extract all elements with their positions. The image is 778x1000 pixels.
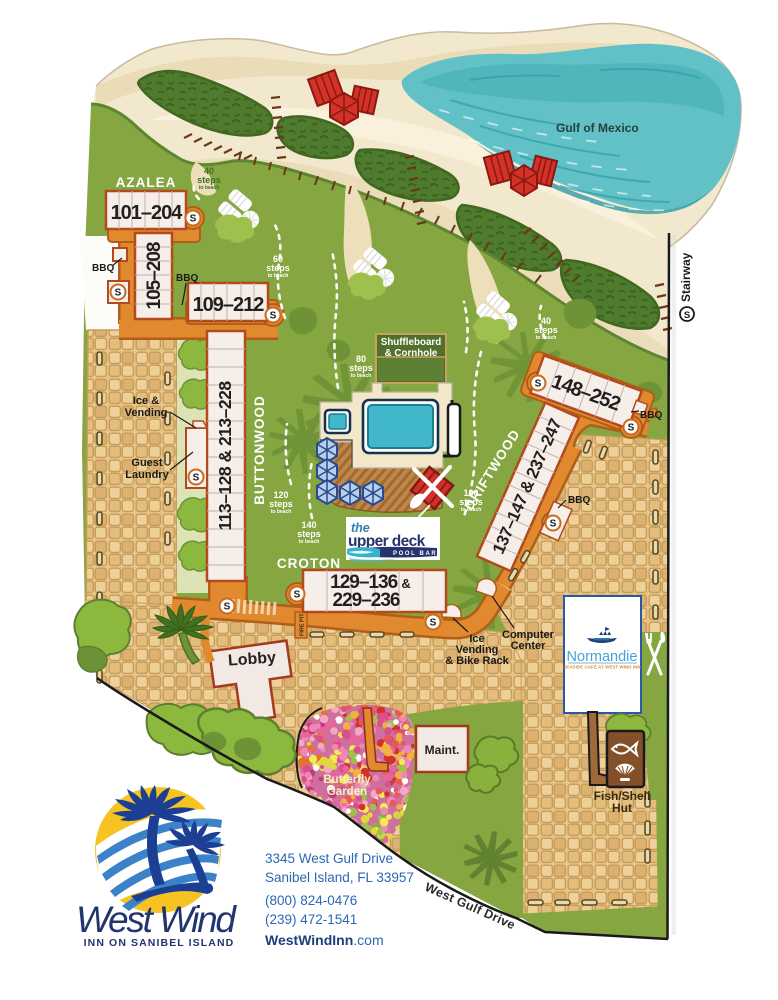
svg-text:steps: steps: [349, 363, 373, 373]
svg-text:to beach: to beach: [351, 373, 372, 379]
svg-text:Laundry: Laundry: [125, 469, 169, 481]
svg-text:229–236: 229–236: [333, 590, 400, 611]
svg-text:West Wind: West Wind: [76, 899, 237, 940]
svg-text:FIRE PIT: FIRE PIT: [300, 613, 306, 636]
svg-text:to beach: to beach: [271, 509, 292, 515]
svg-text:& Cornhole: & Cornhole: [385, 348, 438, 359]
svg-text:to beach: to beach: [536, 335, 557, 341]
svg-text:CROTON: CROTON: [277, 556, 341, 571]
svg-text:101–204: 101–204: [111, 202, 184, 224]
svg-text:Guest: Guest: [131, 457, 163, 469]
svg-text:Sanibel Island, FL 33957: Sanibel Island, FL 33957: [265, 870, 414, 885]
svg-text:BBQ: BBQ: [640, 410, 662, 421]
svg-text:steps: steps: [534, 325, 558, 335]
svg-text:Garden: Garden: [327, 786, 367, 798]
svg-text:Butterfly: Butterfly: [323, 774, 371, 786]
svg-text:Shuffleboard: Shuffleboard: [381, 337, 441, 348]
svg-text:steps: steps: [459, 497, 483, 507]
svg-text:105–208: 105–208: [144, 242, 165, 309]
svg-text:(800) 824-0476: (800) 824-0476: [265, 893, 357, 908]
svg-text:Ice &: Ice &: [133, 395, 159, 407]
svg-text:SEASIDE CAFE AT WEST WIND INN: SEASIDE CAFE AT WEST WIND INN: [563, 665, 641, 670]
svg-text:Center: Center: [511, 640, 547, 652]
svg-text:BUTTONWOOD: BUTTONWOOD: [252, 395, 267, 505]
svg-text:3345 West Gulf Drive: 3345 West Gulf Drive: [265, 851, 393, 866]
svg-text:POOL BAR: POOL BAR: [393, 551, 437, 557]
svg-text:steps: steps: [269, 499, 293, 509]
svg-text:(239) 472-1541: (239) 472-1541: [265, 912, 357, 927]
svg-text:steps: steps: [197, 175, 221, 185]
svg-text:Hut: Hut: [612, 801, 632, 815]
svg-text:steps: steps: [266, 263, 290, 273]
svg-text:Vending: Vending: [125, 407, 168, 419]
svg-text:Gulf of Mexico: Gulf of Mexico: [556, 121, 639, 135]
svg-text:113–128 & 213–228: 113–128 & 213–228: [215, 381, 235, 531]
svg-text:WestWindInn.com: WestWindInn.com: [265, 932, 384, 948]
svg-text:to beach: to beach: [199, 185, 220, 191]
svg-text:INN ON SANIBEL ISLAND: INN ON SANIBEL ISLAND: [84, 937, 235, 949]
svg-text:Maint.: Maint.: [425, 743, 460, 757]
svg-text:S: S: [684, 310, 690, 321]
svg-text:& Bike Rack: & Bike Rack: [445, 655, 509, 667]
svg-text:AZALEA: AZALEA: [116, 175, 177, 190]
svg-text:to beach: to beach: [461, 507, 482, 513]
svg-text:steps: steps: [297, 529, 321, 539]
svg-text:BBQ: BBQ: [176, 273, 198, 284]
svg-text:Lobby: Lobby: [228, 649, 277, 669]
svg-text:Stairway: Stairway: [679, 252, 693, 302]
svg-text:to beach: to beach: [268, 273, 289, 279]
svg-text:BBQ: BBQ: [568, 495, 590, 506]
svg-text:109–212: 109–212: [193, 294, 265, 316]
svg-text:BBQ: BBQ: [92, 263, 114, 274]
svg-text:to beach: to beach: [299, 539, 320, 545]
